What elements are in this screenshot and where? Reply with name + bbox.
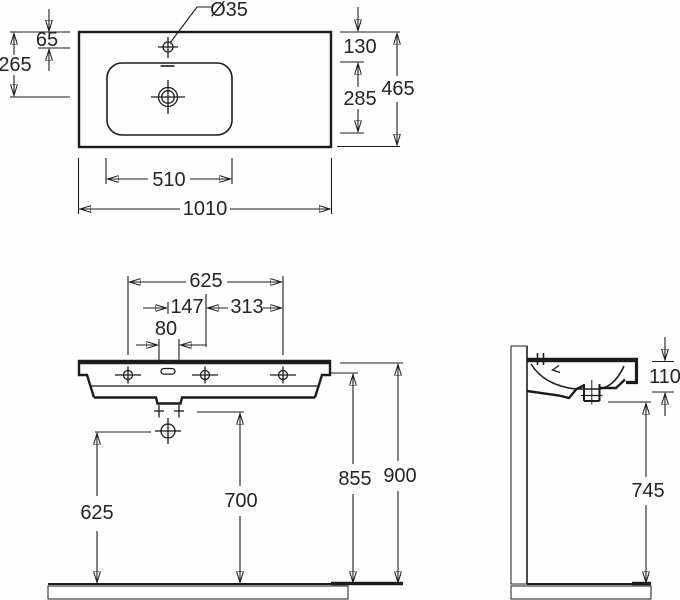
faucet-hole-symbol xyxy=(158,37,178,58)
mounting-hole-symbol-right xyxy=(270,367,296,384)
basin-top-outline xyxy=(79,32,331,147)
dim-bowl-width: 510 xyxy=(106,158,232,191)
dim-clearance-height-label: 745 xyxy=(631,480,664,502)
overflow-slot-front xyxy=(161,369,175,375)
dim-overall-depth-label: 465 xyxy=(381,78,414,100)
bowl-outline-top xyxy=(107,63,232,135)
dim-center-to-hole-label: 313 xyxy=(230,296,263,318)
top-view: Ø35 65 265 130 285 xyxy=(0,0,415,220)
washbasin-dimension-drawing: Ø35 65 265 130 285 xyxy=(0,0,680,600)
dim-drain-offset-label: 265 xyxy=(0,54,32,76)
dim-faucet-offset-label: 65 xyxy=(36,29,58,51)
dim-drain-height: 700 xyxy=(197,412,258,583)
floor-front xyxy=(48,584,403,600)
dim-overall-width: 1010 xyxy=(79,158,332,220)
drain-fixing-marks xyxy=(154,405,184,418)
dim-center-to-hole: 313 xyxy=(208,296,282,318)
drain-hole-symbol xyxy=(151,80,185,114)
floor-hatch-side xyxy=(511,586,651,599)
faucet-diameter-leader: Ø35 xyxy=(170,0,248,43)
trap-outlet-symbol xyxy=(155,418,181,444)
dim-slot-width-label: 80 xyxy=(155,318,177,340)
dim-drain-height-label: 700 xyxy=(224,490,257,512)
dim-basin-height: 110 xyxy=(649,337,680,416)
overflow-arrow xyxy=(553,366,561,373)
dim-faucet-diameter: Ø35 xyxy=(210,0,248,21)
drain-notch xyxy=(94,398,315,404)
mounting-hole-symbol-center xyxy=(192,367,218,384)
dim-slot-to-center-label: 147 xyxy=(170,296,203,318)
dim-edge-to-bowl: 130 xyxy=(340,7,400,62)
mounting-hole-symbol-left xyxy=(115,367,141,384)
dim-bowl-depth-label: 285 xyxy=(343,88,376,110)
wall-section xyxy=(511,346,527,584)
wall-hatch xyxy=(511,346,527,584)
dim-underside-height-label: 855 xyxy=(338,468,371,490)
side-view: 110 745 xyxy=(511,337,680,599)
dim-overall-width-label: 1010 xyxy=(183,198,228,220)
dim-bowl-width-label: 510 xyxy=(152,169,185,191)
dim-rim-height-label: 900 xyxy=(383,465,416,487)
dim-bowl-depth: 285 xyxy=(340,64,377,134)
drain-fitting-section xyxy=(581,380,603,405)
basin-section-profile xyxy=(527,353,638,398)
bowl-curve xyxy=(531,364,624,389)
dim-slot-width: 80 xyxy=(136,318,206,361)
dim-basin-height-label: 110 xyxy=(649,366,680,388)
floor-hatch-front xyxy=(48,586,348,599)
dim-underside-height: 855 xyxy=(331,373,372,583)
floor-side xyxy=(511,584,651,600)
dim-trap-height-label: 625 xyxy=(80,502,113,524)
drawing-canvas: Ø35 65 265 130 285 xyxy=(0,0,680,600)
front-view: 625 147 313 80 625 xyxy=(48,270,417,599)
dim-hole-span-label: 625 xyxy=(189,270,222,292)
dim-edge-to-bowl-label: 130 xyxy=(343,36,376,58)
dim-clearance-height: 745 xyxy=(608,402,665,583)
dim-trap-height: 625 xyxy=(80,432,151,583)
